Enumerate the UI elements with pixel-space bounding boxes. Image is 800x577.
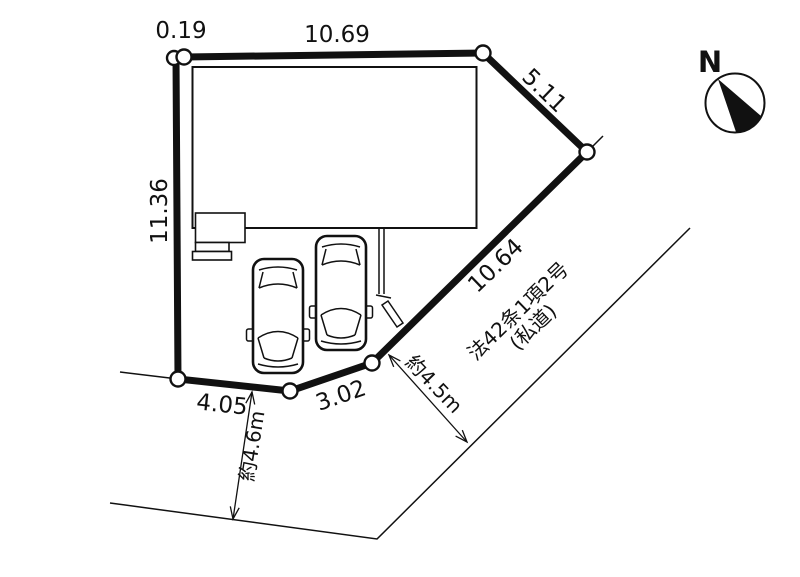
entrance-step-2	[193, 252, 232, 261]
house-footprint	[193, 67, 477, 228]
boundary-marker	[171, 372, 186, 387]
dimension-top-left: 0.19	[155, 18, 206, 44]
boundary-marker	[283, 384, 298, 399]
north-label: N	[698, 45, 722, 79]
site-plan-diagram: 0.19 10.69 11.36 5.11 10.64 3.02 4.05 約4…	[0, 0, 800, 577]
boundary-marker	[580, 145, 595, 160]
car-body	[253, 259, 303, 373]
dimension-bottom-left: 4.05	[195, 389, 249, 420]
road-near-edge-extension-left	[120, 372, 178, 379]
entrance-step-1	[196, 243, 230, 252]
boundary-marker	[177, 50, 192, 65]
fence-end-cap	[376, 295, 391, 298]
dimension-top: 10.69	[304, 22, 370, 48]
boundary-marker	[476, 46, 491, 61]
entrance-porch	[196, 213, 246, 243]
north-compass-icon: N	[698, 45, 765, 133]
private-road-width-label: 約4.5m	[401, 350, 468, 418]
gate-leaf	[382, 301, 403, 327]
car-body	[316, 236, 366, 350]
site-plan-svg: 0.19 10.69 11.36 5.11 10.64 3.02 4.05 約4…	[0, 0, 800, 577]
car-icon-2	[310, 236, 373, 350]
dimension-left: 11.36	[147, 178, 173, 244]
car-icon-1	[247, 259, 310, 373]
front-road-width-label: 約4.6m	[235, 409, 270, 483]
boundary-marker	[365, 356, 380, 371]
